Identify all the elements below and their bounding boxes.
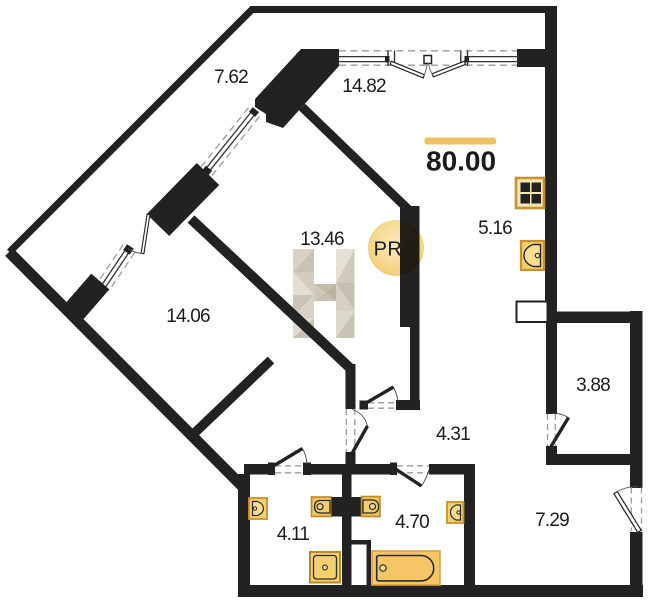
svg-text:4.31: 4.31 xyxy=(436,424,470,445)
svg-text:14.06: 14.06 xyxy=(166,306,210,327)
svg-text:13.46: 13.46 xyxy=(300,229,344,250)
svg-text:14.82: 14.82 xyxy=(342,76,386,97)
svg-text:PRO: PRO xyxy=(374,239,419,261)
svg-text:5.16: 5.16 xyxy=(478,218,512,239)
svg-text:7.29: 7.29 xyxy=(535,510,569,531)
svg-text:80.00: 80.00 xyxy=(426,146,496,177)
svg-text:4.70: 4.70 xyxy=(395,512,429,533)
svg-text:4.11: 4.11 xyxy=(277,524,310,545)
svg-text:3.88: 3.88 xyxy=(576,375,610,396)
svg-text:7.62: 7.62 xyxy=(214,67,248,88)
